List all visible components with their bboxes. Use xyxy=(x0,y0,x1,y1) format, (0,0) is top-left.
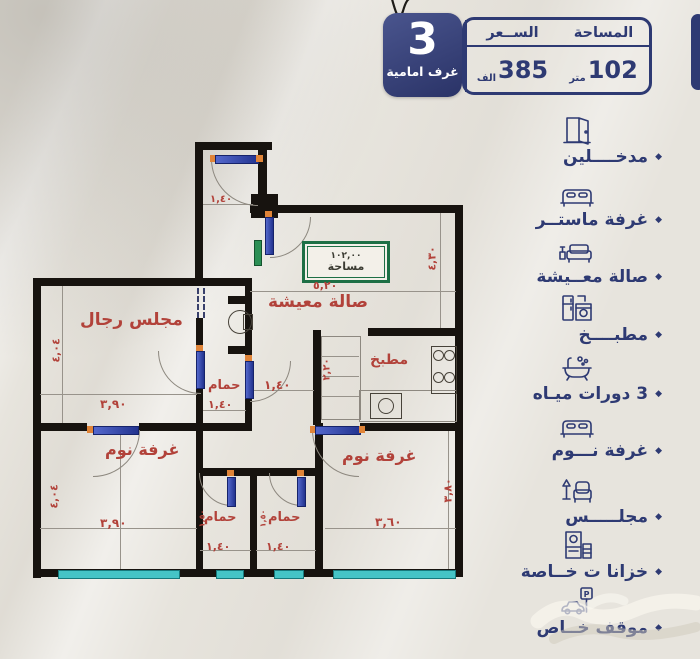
area-column: المساحة 102 متر xyxy=(558,20,649,92)
kitchen-counter xyxy=(321,356,359,357)
wall xyxy=(250,205,463,213)
door-leaf xyxy=(265,217,274,255)
bed-icon xyxy=(462,407,662,439)
price-column: الســعر 385 الف xyxy=(465,20,558,92)
info-table: المساحة 102 متر الســعر 385 الف xyxy=(462,17,652,95)
door-hinge xyxy=(297,470,304,476)
door-leaf xyxy=(196,351,205,389)
bullet-icon: ◆ xyxy=(655,153,662,162)
bullet-icon: ◆ xyxy=(655,568,662,577)
bullet-icon: ◆ xyxy=(655,216,662,225)
wall xyxy=(33,278,252,286)
dim-kitchen-height: ٢,٢٠ xyxy=(322,358,333,380)
rooms-count: 3 xyxy=(383,16,462,64)
door-hinge xyxy=(245,355,252,361)
wall xyxy=(313,330,321,425)
armchair-icon xyxy=(462,473,662,505)
dim-majlis-width: ٣,٩٠ xyxy=(100,397,127,411)
feature-label: غرفة ماستــر xyxy=(536,210,648,230)
dim-bath-mid-width: ١,٤٠ xyxy=(208,398,232,411)
stove-burner xyxy=(433,372,444,383)
door-hinge xyxy=(210,155,215,162)
area-value-cell: 102 متر xyxy=(558,47,649,92)
room-label-majlis: مجلس رجال xyxy=(80,310,183,330)
svg-text:P: P xyxy=(584,590,590,599)
wall-opening-dashed xyxy=(203,288,205,318)
wall xyxy=(228,346,250,354)
wall xyxy=(360,423,463,431)
wall xyxy=(33,423,87,431)
wall-opening-dashed xyxy=(197,288,199,318)
dim-entry-width: ١,٤٠ xyxy=(210,194,232,205)
bullet-icon: ◆ xyxy=(655,331,662,340)
feature-item-closets: ◆خزانا ت خــاصة xyxy=(462,528,662,582)
area-stamp-label: مساحة xyxy=(328,261,365,274)
window xyxy=(254,240,262,266)
window xyxy=(274,570,304,579)
dim-bath-right-width: ١,٤٠ xyxy=(266,540,290,553)
dim-bath-left-height: ١,٥٠ xyxy=(197,510,206,528)
feature-label: 3 دورات ميـاه xyxy=(533,384,648,404)
bed-icon xyxy=(462,176,662,208)
door-hinge xyxy=(87,426,93,433)
door-leaf xyxy=(93,426,139,435)
area-unit: متر xyxy=(569,73,586,84)
stove-burner xyxy=(444,350,455,361)
dim-bath-right-height: ١,٥٠ xyxy=(258,510,267,528)
area-stamp-inner: ١٠٢,٠٠ مساحة xyxy=(307,246,385,278)
bullet-icon: ◆ xyxy=(655,513,662,522)
area-header: المساحة xyxy=(558,20,649,47)
dim-bedroom-left-width: ٣,٩٠ xyxy=(100,516,127,530)
grid-line xyxy=(440,213,441,328)
room-label-bath-mid: حمام xyxy=(208,378,241,393)
feature-label: مدخــــلين xyxy=(563,147,648,167)
rooms-badge: 3 غرف امامية xyxy=(383,13,462,97)
feature-item-bedroom: ◆غرفة نـــوم xyxy=(462,407,662,461)
feature-item-bathrooms: ◆3 دورات ميـاه xyxy=(462,350,662,404)
bullet-icon: ◆ xyxy=(655,624,662,633)
stove-burner xyxy=(433,350,444,361)
feature-item-parking: P ◆موقف خــاص xyxy=(462,584,662,638)
room-label-bath-right: حمام xyxy=(268,510,301,525)
room-label-living: صالة معيشة xyxy=(268,292,368,312)
kitchen-counter xyxy=(321,396,359,397)
bullet-icon: ◆ xyxy=(655,273,662,282)
rooms-count-label: غرف امامية xyxy=(383,64,462,79)
toilet-fixture xyxy=(243,314,253,330)
wall xyxy=(368,328,463,336)
door-hinge xyxy=(310,426,315,433)
dim-bedroom-right-width: ٣,٦٠ xyxy=(375,515,402,529)
bullet-icon: ◆ xyxy=(655,390,662,399)
window xyxy=(216,570,244,579)
door-leaf xyxy=(215,155,259,164)
sofa-icon xyxy=(462,233,662,265)
feature-label: مجلـــــس xyxy=(565,507,648,527)
wall xyxy=(250,468,257,577)
dim-majlis-height: ٤,٠٤ xyxy=(50,338,63,362)
feature-label: خزانا ت خــاصة xyxy=(521,562,648,582)
door-icon xyxy=(462,113,662,145)
dim-bedroom-left-height: ٤,٠٤ xyxy=(48,484,61,508)
feature-item-master-room: ◆غرفة ماستــر xyxy=(462,176,662,230)
feature-item-kitchen: ◆مطبــــخ xyxy=(462,291,662,345)
bullet-icon: ◆ xyxy=(655,447,662,456)
kitchen-icon xyxy=(462,291,662,323)
flyer: 3 غرف امامية المساحة 102 متر الســعر 385… xyxy=(0,0,700,659)
room-label-bedroom-left: غرفة نوم xyxy=(105,440,179,459)
window xyxy=(58,570,180,579)
bathtub-icon xyxy=(462,350,662,382)
window xyxy=(333,570,456,579)
price-value: 385 xyxy=(498,56,548,84)
area-stamp-box: ١٠٢,٠٠ مساحة xyxy=(302,241,390,283)
price-unit: الف xyxy=(477,73,496,84)
door-hinge xyxy=(196,345,203,351)
dim-hall-width: ١,٤٠ xyxy=(264,378,291,392)
dim-living-height: ٤,٣٠ xyxy=(426,246,439,270)
feature-item-entrances: ◆مدخــــلين xyxy=(462,113,662,167)
dim-bath-left-width: ١,٤٠ xyxy=(206,540,230,553)
door-hinge xyxy=(227,470,234,476)
feature-item-living-hall: ◆صالة معــيشة xyxy=(462,233,662,287)
dim-bedroom-right-height: ٣,٨٠ xyxy=(442,478,455,502)
edge-decoration-bar xyxy=(691,14,700,90)
door-leaf xyxy=(227,477,236,507)
door-leaf xyxy=(315,426,361,435)
area-value: 102 xyxy=(588,56,638,84)
door-leaf xyxy=(245,361,254,399)
closet-icon xyxy=(462,528,662,560)
door-leaf xyxy=(297,477,306,507)
door-hinge xyxy=(256,155,263,162)
price-header: الســعر xyxy=(467,20,558,47)
door-hinge xyxy=(359,426,365,433)
wall xyxy=(195,142,203,286)
kitchen-sink xyxy=(378,398,394,414)
feature-label: غرفة نـــوم xyxy=(552,441,648,461)
feature-item-majlis: ◆مجلـــــس xyxy=(462,473,662,527)
room-label-kitchen: مطبخ xyxy=(370,352,408,368)
feature-label: موقف خــاص xyxy=(536,618,648,638)
price-value-cell: 385 الف xyxy=(467,47,558,92)
wall xyxy=(228,296,250,304)
stove-burner xyxy=(444,372,455,383)
door-hinge xyxy=(265,211,272,217)
feature-label: مطبــــخ xyxy=(579,325,649,345)
room-label-bath-left: حمام xyxy=(204,510,237,525)
dim-living-width: ٥,٢٠ xyxy=(313,279,337,292)
feature-label: صالة معــيشة xyxy=(536,267,648,287)
dimension-line xyxy=(40,394,197,395)
room-label-bedroom-right: غرفة نوم xyxy=(342,446,416,465)
parking-icon: P xyxy=(462,584,662,616)
